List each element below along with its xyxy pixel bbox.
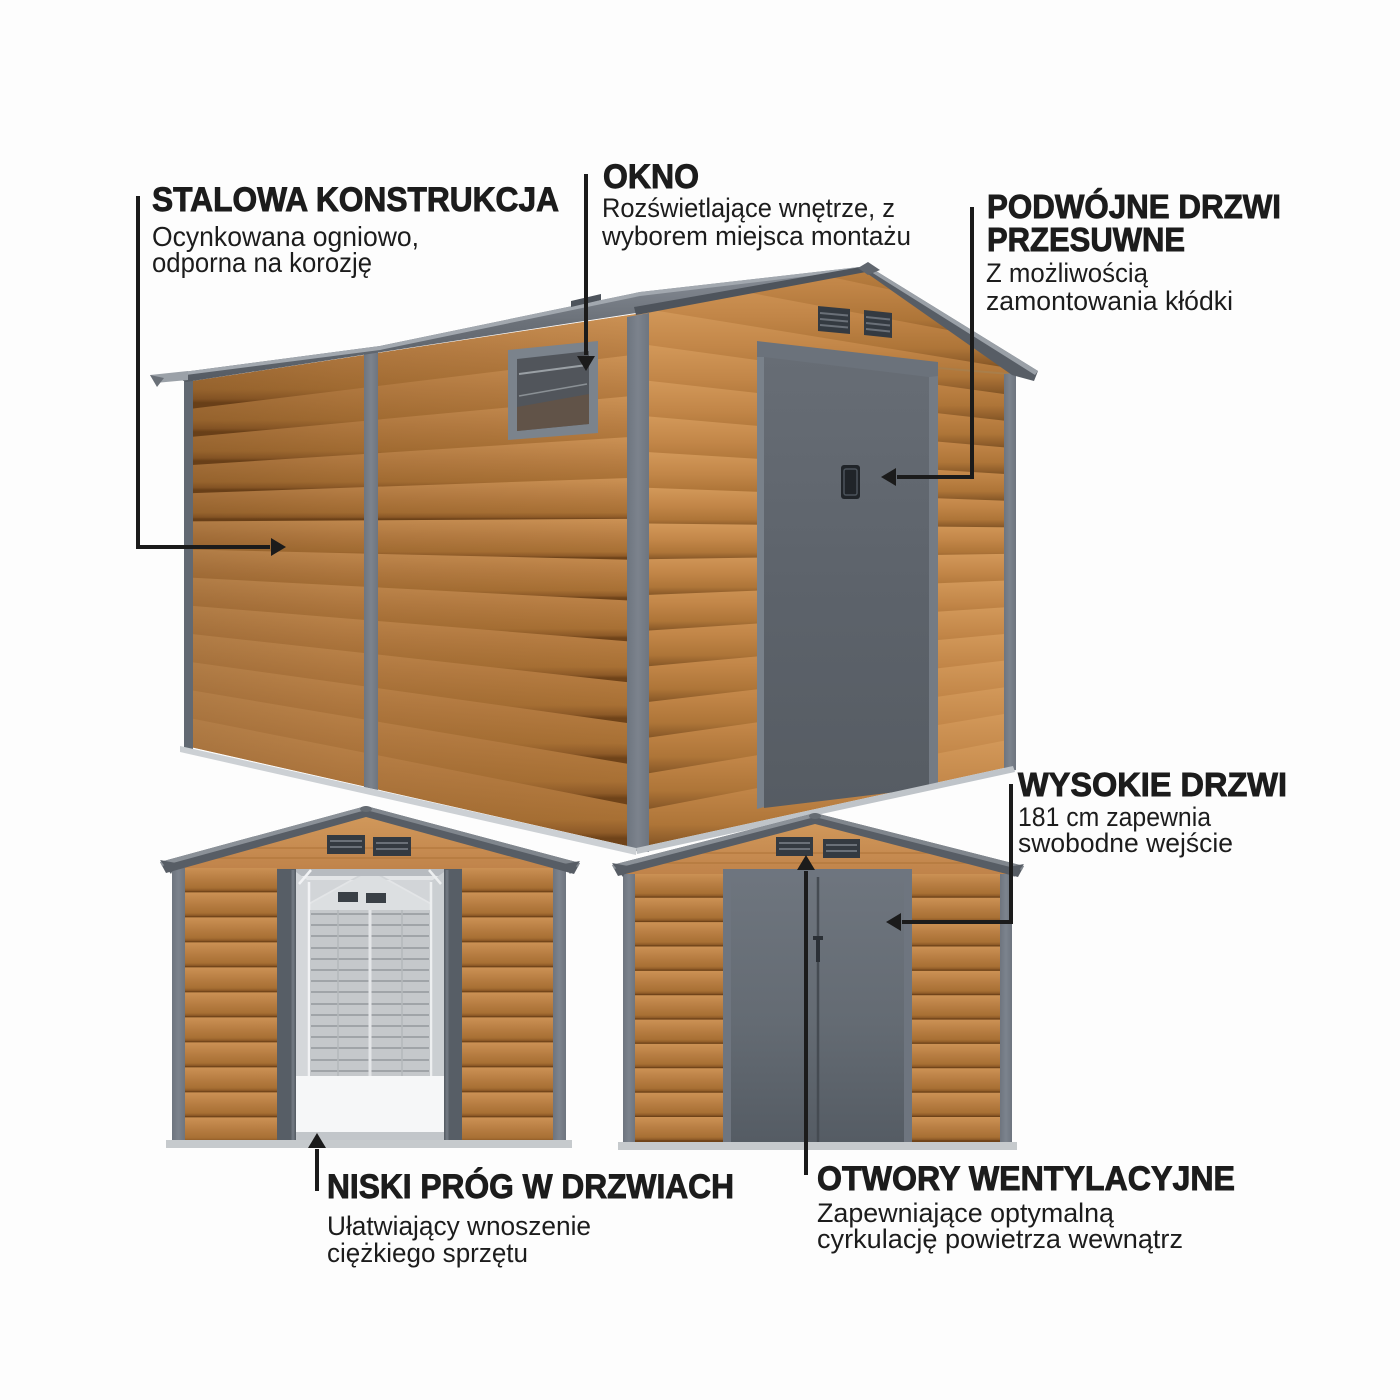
svg-text:zamontowania kłódki: zamontowania kłódki bbox=[986, 286, 1233, 316]
svg-text:PRZESUWNE: PRZESUWNE bbox=[987, 221, 1185, 258]
svg-text:OKNO: OKNO bbox=[603, 158, 699, 196]
svg-text:Rozświetlające wnętrze, z: Rozświetlające wnętrze, z bbox=[602, 193, 895, 223]
svg-text:Z możliwością: Z możliwością bbox=[986, 258, 1149, 288]
svg-text:STALOWA KONSTRUKCJA: STALOWA KONSTRUKCJA bbox=[152, 181, 559, 219]
svg-text:odporna na korozję: odporna na korozję bbox=[152, 247, 372, 278]
svg-text:cyrkulację powietrza wewnątrz: cyrkulację powietrza wewnątrz bbox=[817, 1224, 1183, 1254]
svg-text:wyborem miejsca montażu: wyborem miejsca montażu bbox=[601, 221, 911, 251]
svg-text:OTWORY WENTYLACYJNE: OTWORY WENTYLACYJNE bbox=[817, 1160, 1235, 1198]
svg-text:Ułatwiający wnoszenie: Ułatwiający wnoszenie bbox=[327, 1211, 591, 1241]
svg-text:ciężkiego sprzętu: ciężkiego sprzętu bbox=[327, 1238, 528, 1268]
svg-text:swobodne wejście: swobodne wejście bbox=[1018, 828, 1233, 858]
svg-text:WYSOKIE DRZWI: WYSOKIE DRZWI bbox=[1018, 766, 1287, 803]
svg-text:NISKI PRÓG W DRZWIACH: NISKI PRÓG W DRZWIACH bbox=[327, 1168, 734, 1206]
svg-text:PODWÓJNE DRZWI: PODWÓJNE DRZWI bbox=[987, 188, 1281, 225]
